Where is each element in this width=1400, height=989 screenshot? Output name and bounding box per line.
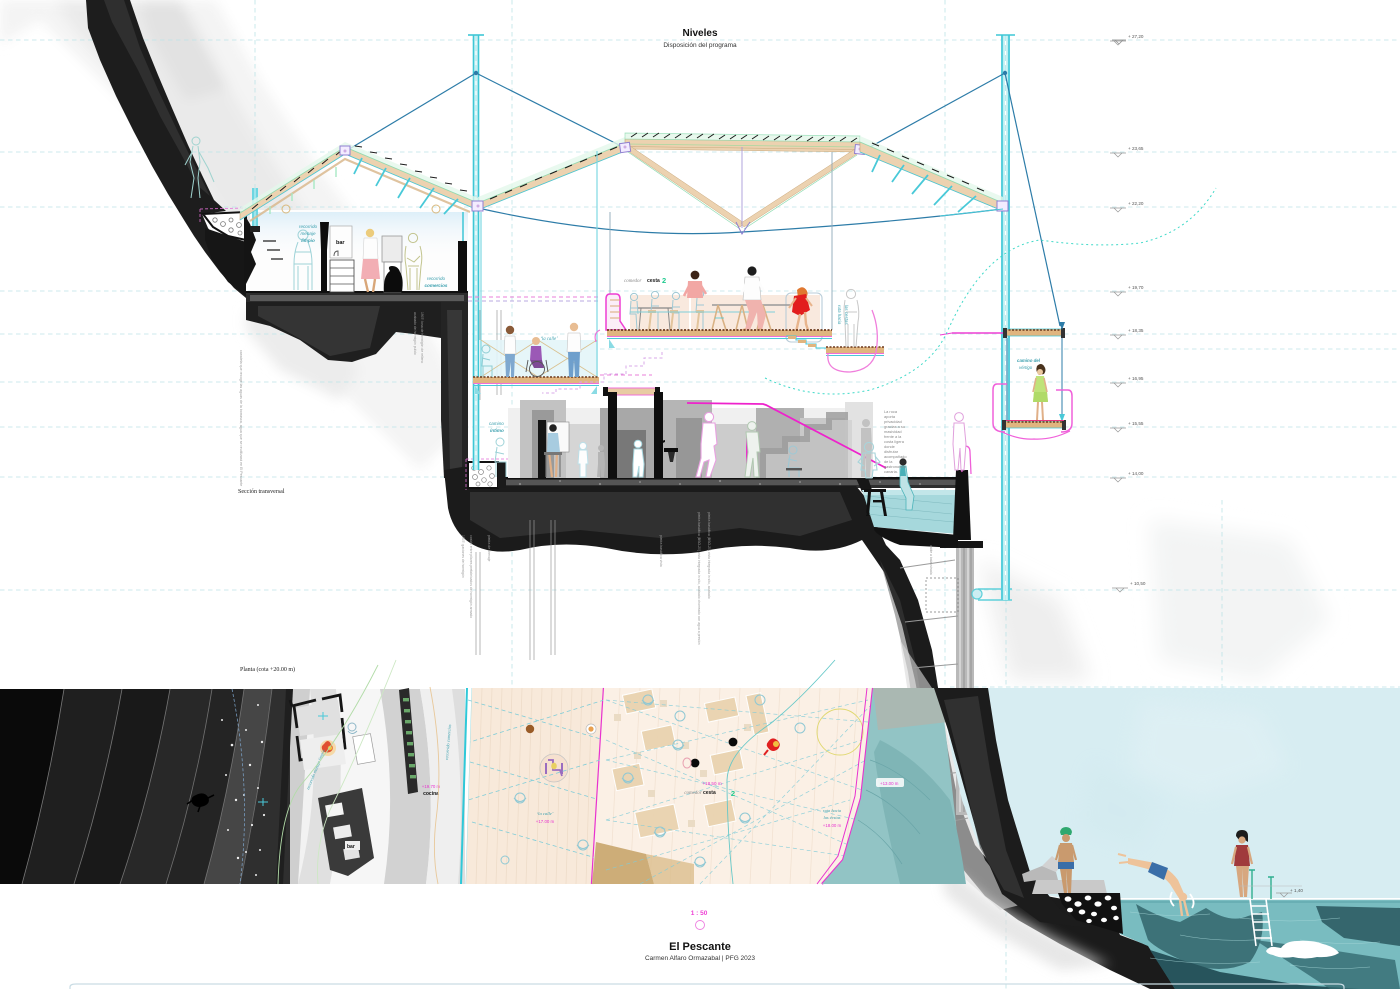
svg-text:+ 27,20: + 27,20	[1128, 34, 1144, 39]
svg-text:comercios: comercios	[425, 283, 448, 288]
svg-text:cable a balaustrada: cable a balaustrada	[929, 545, 933, 575]
svg-text:ruta hacia: ruta hacia	[837, 305, 842, 325]
svg-text:+18.00 m: +18.00 m	[823, 823, 842, 828]
svg-text:+ 15,55: + 15,55	[1128, 421, 1144, 426]
svg-text:piedra basáltica (BSO-20) vist: piedra basáltica (BSO-20) vista integrad…	[707, 512, 711, 599]
svg-text:las éestas: las éestas	[824, 815, 841, 820]
svg-text:1907: gaviones de hormigón: 1907: gaviones de hormigón	[461, 535, 465, 578]
svg-text:cocina: cocina	[423, 791, 439, 797]
svg-text:Niveles: Niveles	[682, 28, 717, 39]
svg-text:cosido entre pilares prefabric: cosido entre pilares prefabricados de ho…	[469, 535, 473, 618]
svg-text:+ 16,95: + 16,95	[1128, 376, 1144, 381]
svg-text:+19.70 m: +19.70 m	[422, 784, 441, 789]
svg-text:+ 22,20: + 22,20	[1128, 201, 1144, 206]
svg-text:2: 2	[662, 276, 666, 285]
svg-text:acabado de hormigón pulido: acabado de hormigón pulido	[413, 312, 417, 355]
svg-text:las cestas: las cestas	[844, 305, 849, 325]
svg-text:recorrido: recorrido	[299, 224, 318, 229]
svg-text:camino del: camino del	[1017, 358, 1041, 363]
svg-text:‘la calle’: ‘la calle’	[537, 811, 554, 816]
svg-text:bar: bar	[347, 844, 355, 850]
svg-text:piedra basáltica vista: piedra basáltica vista	[659, 535, 663, 567]
svg-text:+17.00 m: +17.00 m	[536, 819, 555, 824]
svg-text:piedra de drenaje: piedra de drenaje	[487, 535, 491, 562]
svg-text:Sección transversal: Sección transversal	[238, 489, 285, 495]
svg-text:+ 10,50: + 10,50	[1130, 581, 1146, 586]
svg-text:limpio: limpio	[301, 238, 315, 243]
svg-text:camino: camino	[489, 421, 504, 426]
svg-text:‘la calle’: ‘la calle’	[540, 336, 558, 342]
svg-text:canaleta que recoge las aguas: canaleta que recoge las aguas de la borr…	[239, 350, 243, 486]
svg-text:El Pescante: El Pescante	[669, 941, 731, 953]
svg-text:bar: bar	[336, 240, 345, 246]
svg-text:+18.50 m: +18.50 m	[702, 781, 721, 786]
svg-text:menaje: menaje	[300, 231, 316, 236]
svg-text:comedor cesta: comedor cesta	[684, 790, 716, 796]
svg-text:vértigo: vértigo	[1019, 365, 1033, 370]
svg-text:+ 14,00: + 14,00	[1128, 471, 1144, 476]
svg-text:piedra basáltica (BSO-20) vist: piedra basáltica (BSO-20) vista integrad…	[697, 512, 701, 645]
svg-text:+ 18,35: + 18,35	[1128, 328, 1144, 333]
svg-text:+ 1,40: + 1,40	[1290, 888, 1303, 893]
svg-text:Planta (cota +20.00 m): Planta (cota +20.00 m)	[240, 666, 295, 673]
svg-text:2: 2	[731, 789, 735, 798]
svg-text:1 : 50: 1 : 50	[691, 910, 708, 917]
svg-text:+13.00 m: +13.00 m	[880, 781, 899, 786]
svg-text:+ 23,65: + 23,65	[1128, 146, 1144, 151]
svg-text:recorrido: recorrido	[427, 276, 446, 281]
svg-text:+ 19,70: + 19,70	[1128, 285, 1144, 290]
svg-text:1907: losa de hormigón de rell: 1907: losa de hormigón de relleno	[420, 312, 424, 363]
svg-text:canaria.: canaria.	[884, 469, 898, 474]
svg-text:íntimo: íntimo	[490, 428, 504, 433]
svg-text:Disposición del programa: Disposición del programa	[663, 42, 737, 49]
svg-text:comedor: comedor	[624, 279, 642, 284]
svg-text:ruta hacia: ruta hacia	[823, 808, 842, 813]
svg-text:Carmen Alfaro Ormazabal | PFG: Carmen Alfaro Ormazabal | PFG 2023	[645, 955, 755, 962]
svg-text:cesta: cesta	[647, 278, 660, 284]
